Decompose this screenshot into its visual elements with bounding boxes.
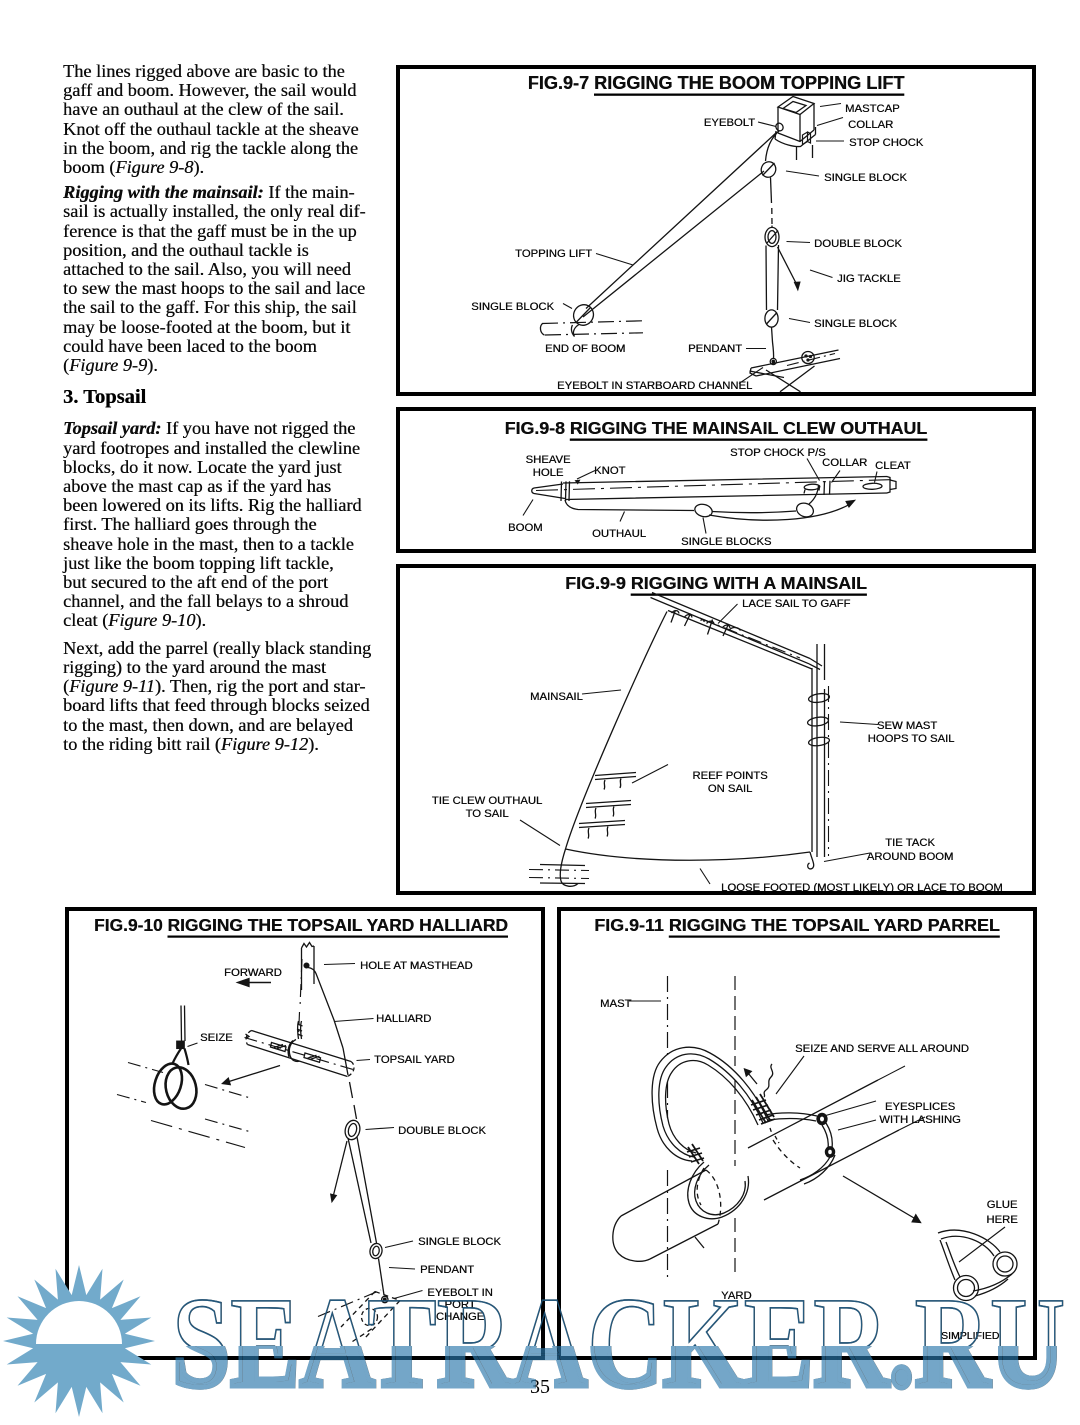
svg-text:MAINSAIL: MAINSAIL — [530, 691, 583, 703]
svg-text:DOUBLE BLOCK: DOUBLE BLOCK — [398, 1125, 486, 1137]
svg-text:SINGLE BLOCK: SINGLE BLOCK — [814, 318, 897, 330]
svg-text:FIG.9-10 RIGGING THE TOPSAIL Y: FIG.9-10 RIGGING THE TOPSAIL YARD HALLIA… — [94, 915, 508, 935]
svg-text:FIG.9-11 RIGGING THE TOPSAIL Y: FIG.9-11 RIGGING THE TOPSAIL YARD PARREL — [594, 915, 1000, 935]
svg-text:MASTCAP: MASTCAP — [845, 103, 900, 115]
svg-text:KNOT: KNOT — [594, 465, 625, 477]
svg-text:BOOM: BOOM — [508, 522, 543, 534]
svg-text:DOUBLE BLOCK: DOUBLE BLOCK — [814, 238, 902, 250]
svg-text:MAST: MAST — [600, 998, 631, 1010]
svg-text:END OF BOOM: END OF BOOM — [545, 343, 625, 355]
svg-text:FIG.9-9 RIGGING WITH A MAINSAI: FIG.9-9 RIGGING WITH A MAINSAIL — [565, 573, 867, 593]
svg-text:SINGLE BLOCK: SINGLE BLOCK — [418, 1236, 501, 1248]
svg-text:EYEBOLT IN STARBOARD CHANNEL: EYEBOLT IN STARBOARD CHANNEL — [557, 380, 752, 392]
svg-text:SEIZE AND SERVE ALL AROUND: SEIZE AND SERVE ALL AROUND — [795, 1043, 969, 1055]
svg-text:HOLE AT MASTHEAD: HOLE AT MASTHEAD — [360, 960, 473, 972]
svg-text:COLLAR: COLLAR — [822, 457, 867, 469]
svg-text:SINGLE BLOCK: SINGLE BLOCK — [471, 301, 554, 313]
svg-text:REEF POINTS: REEF POINTS — [692, 770, 768, 782]
svg-text:CLEAT: CLEAT — [875, 460, 911, 472]
svg-text:EYEBOLT: EYEBOLT — [704, 117, 755, 129]
svg-text:FORWARD: FORWARD — [224, 967, 282, 979]
svg-text:HERE: HERE — [986, 1214, 1018, 1226]
svg-text:SEW MAST: SEW MAST — [877, 720, 937, 732]
svg-text:EYEBOLT IN: EYEBOLT IN — [427, 1287, 493, 1299]
svg-text:PENDANT: PENDANT — [688, 343, 742, 355]
svg-text:LACE SAIL TO GAFF: LACE SAIL TO GAFF — [742, 598, 851, 610]
svg-text:WITH LASHING: WITH LASHING — [879, 1114, 961, 1126]
svg-text:TOPPING LIFT: TOPPING LIFT — [515, 248, 592, 260]
svg-text:HOLE: HOLE — [533, 467, 564, 479]
svg-text:AROUND BOOM: AROUND BOOM — [867, 851, 954, 863]
svg-text:COLLAR: COLLAR — [848, 119, 893, 131]
svg-text:TOPSAIL YARD: TOPSAIL YARD — [374, 1054, 455, 1066]
svg-text:CHANGE: CHANGE — [436, 1311, 485, 1323]
svg-text:SIMPLIFIED: SIMPLIFIED — [941, 1330, 1000, 1342]
svg-text:TIE CLEW OUTHAUL: TIE CLEW OUTHAUL — [432, 795, 542, 807]
svg-text:HOOPS TO SAIL: HOOPS TO SAIL — [868, 733, 955, 745]
svg-text:GLUE: GLUE — [987, 1199, 1018, 1211]
svg-text:HALLIARD: HALLIARD — [376, 1013, 431, 1025]
svg-text:SINGLE BLOCKS: SINGLE BLOCKS — [681, 536, 772, 548]
svg-text:EYESPLICES: EYESPLICES — [885, 1101, 956, 1113]
svg-text:TIE TACK: TIE TACK — [885, 837, 935, 849]
svg-text:FIG.9-7 RIGGING THE BOOM TOPPI: FIG.9-7 RIGGING THE BOOM TOPPING LIFT — [528, 73, 905, 93]
svg-text:STOP CHOCK: STOP CHOCK — [849, 137, 924, 149]
svg-text:OUTHAUL: OUTHAUL — [592, 528, 646, 540]
svg-text:FIG.9-8 RIGGING THE MAINSAIL C: FIG.9-8 RIGGING THE MAINSAIL CLEW OUTHAU… — [505, 418, 928, 438]
svg-text:LOOSE FOOTED (MOST LIKELY) OR: LOOSE FOOTED (MOST LIKELY) OR LACE TO BO… — [721, 882, 1003, 891]
svg-text:SINGLE BLOCK: SINGLE BLOCK — [824, 172, 907, 184]
svg-text:SHEAVE: SHEAVE — [526, 454, 571, 466]
svg-text:PORT: PORT — [444, 1299, 475, 1311]
svg-text:TO SAIL: TO SAIL — [465, 808, 508, 820]
svg-text:SEIZE: SEIZE — [200, 1032, 233, 1044]
svg-text:PENDANT: PENDANT — [420, 1264, 474, 1276]
svg-text:STOP CHOCK P/S: STOP CHOCK P/S — [730, 447, 826, 459]
svg-text:ON SAIL: ON SAIL — [708, 783, 753, 795]
svg-text:YARD: YARD — [721, 1290, 752, 1302]
svg-text:JIG TACKLE: JIG TACKLE — [837, 273, 901, 285]
